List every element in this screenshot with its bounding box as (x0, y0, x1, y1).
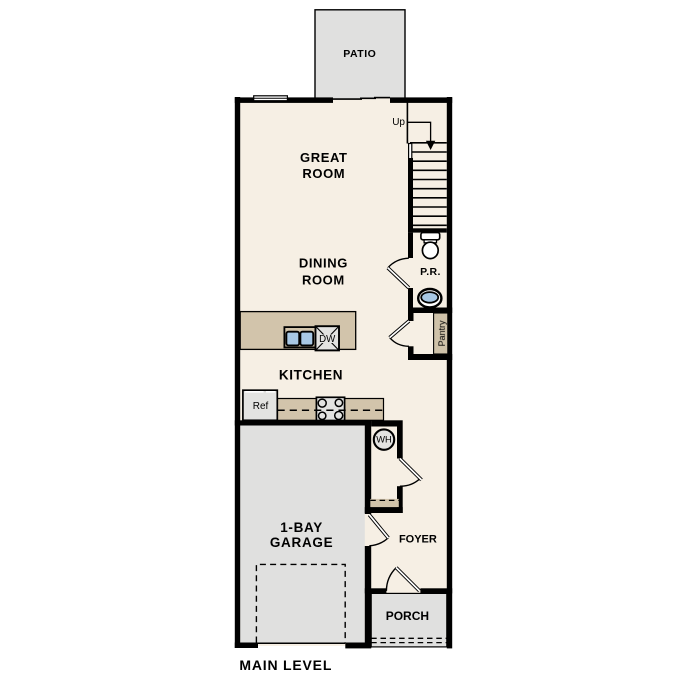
svg-text:PATIO: PATIO (343, 48, 376, 60)
svg-text:GREAT: GREAT (300, 150, 348, 165)
svg-text:PORCH: PORCH (386, 609, 429, 623)
svg-text:Up: Up (392, 117, 405, 128)
svg-text:MAIN LEVEL: MAIN LEVEL (239, 657, 332, 673)
svg-text:FOYER: FOYER (399, 534, 437, 546)
svg-text:P.R.: P.R. (420, 266, 441, 278)
svg-text:ROOM: ROOM (302, 272, 345, 287)
svg-text:Pantry: Pantry (437, 320, 447, 347)
svg-text:DINING: DINING (299, 256, 348, 271)
svg-text:1-BAY: 1-BAY (280, 520, 323, 535)
svg-text:Ref: Ref (253, 401, 269, 412)
svg-text:KITCHEN: KITCHEN (279, 367, 343, 382)
svg-text:WH: WH (376, 435, 392, 445)
svg-text:GARAGE: GARAGE (270, 535, 333, 550)
svg-text:ROOM: ROOM (302, 166, 345, 181)
svg-text:DW: DW (319, 334, 336, 345)
